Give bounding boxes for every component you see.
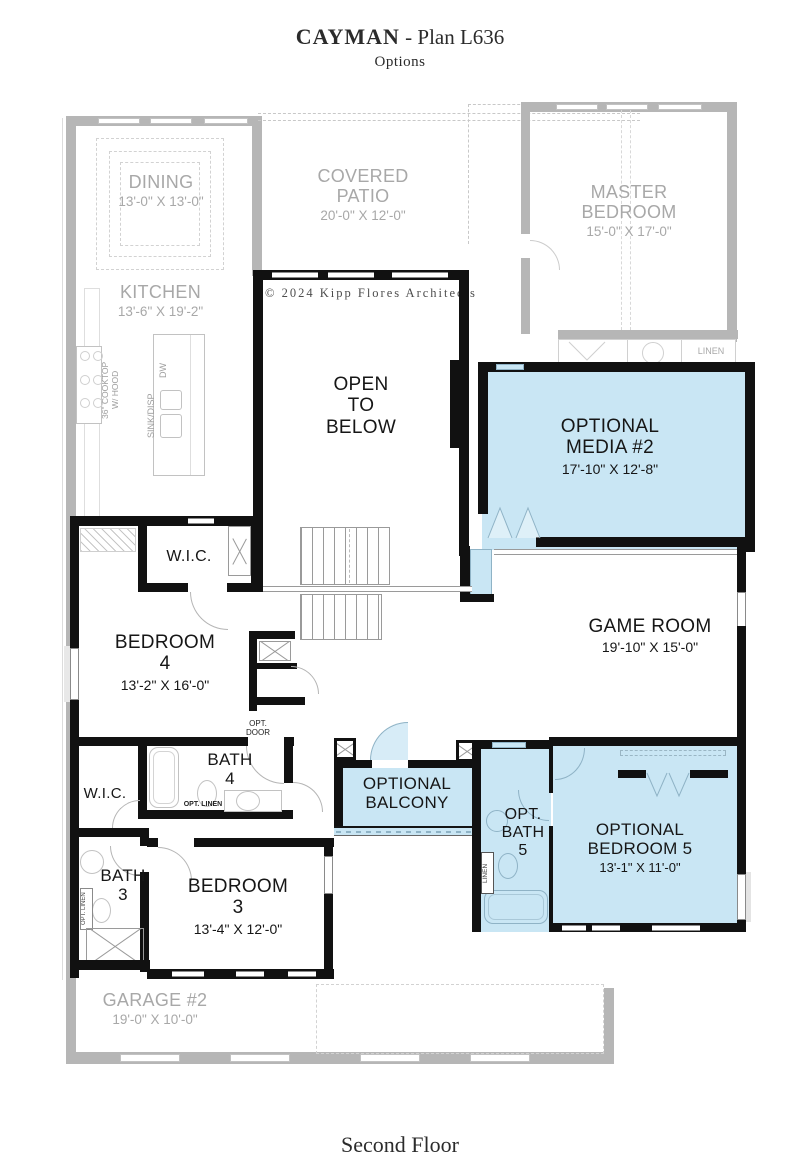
ceiling-header-line bbox=[494, 549, 738, 555]
double-door-icon bbox=[646, 772, 690, 798]
window bbox=[556, 104, 598, 110]
window bbox=[328, 272, 374, 278]
chase-x bbox=[334, 738, 356, 760]
door-opening bbox=[158, 838, 194, 847]
floor-plan-page: CAYMAN - Plan L636 Options DINING 13'-0"… bbox=[0, 0, 800, 1172]
chase-x bbox=[259, 641, 291, 661]
room-label-game-room: GAME ROOM 19'-10" X 15'-0" bbox=[574, 616, 726, 660]
balcony-railing bbox=[334, 826, 478, 836]
window bbox=[737, 874, 746, 920]
divider bbox=[627, 340, 628, 364]
window bbox=[470, 1054, 530, 1062]
room-name: BEDROOM 3 bbox=[188, 876, 288, 919]
wall-segment bbox=[472, 740, 481, 932]
island-counter-line bbox=[190, 335, 191, 475]
window bbox=[392, 272, 448, 278]
room-label-optional-bedroom-5: OPTIONAL BEDROOM 5 13'-1" X 11'-0" bbox=[566, 820, 714, 876]
room-dims: 17'-10" X 12'-8" bbox=[562, 461, 658, 477]
window bbox=[188, 518, 214, 524]
cased-opening bbox=[496, 364, 524, 370]
wall-segment bbox=[521, 258, 530, 334]
wall-segment bbox=[70, 737, 248, 746]
room-label-bath-4: BATH 4 bbox=[176, 750, 284, 792]
window bbox=[172, 971, 204, 977]
room-name: GARAGE #2 bbox=[103, 990, 208, 1010]
room-label-garage-2: GARAGE #2 19'-0" X 10'-0" bbox=[85, 990, 225, 1032]
wall-segment bbox=[70, 516, 138, 526]
garage-overhead-line bbox=[316, 984, 604, 1054]
stairs-upper-run bbox=[300, 527, 390, 585]
opt-linen-label-vertical: OPT. LINEN bbox=[81, 889, 92, 929]
linen-label: LINEN bbox=[688, 346, 734, 356]
opt-door-label: OPT. DOOR bbox=[237, 719, 279, 737]
island-sink bbox=[160, 390, 182, 410]
room-label-open-to-below: OPEN TO BELOW bbox=[302, 374, 420, 440]
stairs-direction-line bbox=[349, 529, 350, 583]
room-name: BATH 4 bbox=[207, 750, 252, 788]
window bbox=[204, 118, 248, 124]
wall-segment bbox=[459, 270, 469, 556]
stairs-lower-run bbox=[300, 594, 382, 640]
wall-segment bbox=[138, 583, 188, 592]
patio-roof-line bbox=[468, 104, 469, 244]
window bbox=[230, 1054, 290, 1062]
wall-segment bbox=[450, 360, 459, 448]
stair-railing bbox=[263, 586, 472, 592]
window bbox=[562, 925, 586, 931]
window bbox=[236, 971, 264, 977]
island-sink bbox=[160, 414, 182, 438]
room-name: BATH 3 bbox=[100, 866, 145, 904]
room-name: OPTIONAL BEDROOM 5 bbox=[588, 820, 693, 858]
toilet bbox=[642, 342, 664, 364]
room-name: W.I.C. bbox=[84, 786, 127, 803]
plan-subtitle: Options bbox=[0, 54, 800, 71]
room-name: COVERED PATIO bbox=[317, 166, 408, 206]
wall-segment bbox=[737, 546, 746, 740]
window bbox=[70, 648, 79, 700]
room-dims: 13'-0" X 13'-0" bbox=[118, 194, 203, 209]
room-name: MASTER BEDROOM bbox=[581, 182, 676, 222]
room-label-opt-bath-5: OPT. BATH 5 bbox=[488, 806, 558, 868]
wall-segment bbox=[521, 102, 530, 234]
sink-disp-label: SINK/DISP bbox=[146, 384, 158, 448]
cased-opening bbox=[492, 742, 526, 748]
wall-segment bbox=[70, 828, 147, 837]
wall-segment bbox=[536, 537, 755, 547]
bathtub-inner bbox=[488, 894, 544, 920]
wall-segment bbox=[478, 362, 488, 514]
room-dims: 13'-1" X 11'-0" bbox=[599, 860, 680, 875]
door-swing bbox=[530, 240, 560, 270]
door-swing bbox=[291, 666, 319, 694]
bathtub bbox=[484, 890, 548, 924]
cooktop-burners bbox=[77, 348, 101, 422]
room-label-optional-balcony: OPTIONAL BALCONY bbox=[340, 774, 474, 820]
window bbox=[324, 856, 333, 894]
window bbox=[98, 118, 140, 124]
window bbox=[658, 104, 702, 110]
cooktop-label: 36" COOKTOP W/ HOOD bbox=[100, 340, 120, 440]
window bbox=[288, 971, 316, 977]
wall-segment bbox=[460, 594, 494, 602]
room-name: BEDROOM 4 bbox=[115, 632, 215, 675]
chase-x bbox=[228, 526, 251, 576]
window-sill bbox=[746, 872, 751, 922]
room-dims: 19'-0" X 10'-0" bbox=[112, 1012, 197, 1027]
window bbox=[120, 1054, 180, 1062]
plan-number: - Plan L636 bbox=[400, 25, 504, 49]
wall-segment bbox=[604, 988, 614, 1058]
wall-segment bbox=[251, 516, 260, 592]
bathtub bbox=[149, 747, 179, 808]
wall-segment bbox=[558, 330, 738, 339]
toilet bbox=[236, 791, 260, 811]
door-swing bbox=[293, 782, 323, 812]
room-label-wic-upper: W.I.C. bbox=[148, 548, 230, 570]
wall-segment bbox=[70, 960, 150, 970]
window bbox=[150, 118, 192, 124]
room-dims: 15'-0" X 17'-0" bbox=[586, 224, 671, 239]
room-name: KITCHEN bbox=[120, 282, 201, 302]
window bbox=[360, 1054, 420, 1062]
room-name: OPTIONAL BALCONY bbox=[363, 774, 451, 812]
closet-shelf-line bbox=[620, 750, 726, 756]
room-name: OPTIONAL MEDIA #2 bbox=[561, 416, 659, 459]
room-label-master-bedroom: MASTER BEDROOM 15'-0" X 17'-0" bbox=[556, 182, 702, 244]
room-label-bedroom-4: BEDROOM 4 13'-2" X 16'-0" bbox=[92, 632, 238, 694]
room-name: OPT. BATH 5 bbox=[502, 806, 545, 860]
wall-segment bbox=[70, 516, 79, 978]
patio-roof-line bbox=[258, 120, 640, 121]
shower bbox=[86, 928, 144, 964]
room-label-kitchen: KITCHEN 13'-6" X 19'-2" bbox=[88, 282, 233, 322]
window-mullion bbox=[737, 626, 746, 638]
room-label-optional-media: OPTIONAL MEDIA #2 17'-10" X 12'-8" bbox=[534, 416, 686, 476]
plan-name: CAYMAN bbox=[296, 24, 400, 49]
bathtub-inner bbox=[153, 751, 175, 804]
room-label-dining: DINING 13'-0" X 13'-0" bbox=[90, 172, 232, 216]
wall-segment bbox=[727, 102, 737, 342]
wall-segment bbox=[284, 737, 293, 783]
room-name: GAME ROOM bbox=[588, 616, 711, 637]
room-name: W.I.C. bbox=[166, 548, 211, 566]
room-dims: 20'-0" X 12'-0" bbox=[320, 208, 405, 223]
shower-door-icon bbox=[568, 341, 606, 362]
door-pocket bbox=[470, 549, 492, 595]
wall-segment bbox=[549, 737, 746, 746]
divider bbox=[681, 340, 682, 364]
room-name: OPEN TO BELOW bbox=[326, 374, 396, 438]
wall-segment bbox=[227, 583, 260, 592]
room-label-covered-patio: COVERED PATIO 20'-0" X 12'-0" bbox=[288, 166, 438, 228]
dishwasher-label: DW bbox=[158, 360, 170, 382]
room-dims: 19'-10" X 15'-0" bbox=[602, 639, 698, 655]
room-label-bedroom-3: BEDROOM 3 13'-4" X 12'-0" bbox=[164, 876, 312, 934]
room-dims: 13'-6" X 19'-2" bbox=[118, 304, 203, 319]
wall-segment bbox=[745, 362, 755, 552]
exterior-siding-line bbox=[62, 118, 63, 980]
patio-roof-line bbox=[258, 113, 640, 114]
opt-linen-label: OPT. LINEN bbox=[176, 801, 230, 808]
door-swing bbox=[190, 592, 228, 630]
floor-caption: Second Floor bbox=[0, 1132, 800, 1158]
wall-segment bbox=[138, 516, 147, 592]
wall-segment bbox=[249, 631, 295, 639]
window bbox=[272, 272, 318, 278]
double-door-icon bbox=[486, 506, 542, 540]
room-dims: 13'-2" X 16'-0" bbox=[121, 677, 209, 693]
wall-segment bbox=[334, 760, 372, 768]
plan-title: CAYMAN - Plan L636 Options bbox=[0, 24, 800, 71]
attic-hatch bbox=[80, 528, 136, 552]
sink bbox=[80, 850, 104, 874]
door-swing bbox=[370, 722, 408, 760]
window bbox=[592, 925, 620, 931]
wall-segment bbox=[252, 116, 262, 276]
room-name: DINING bbox=[129, 172, 194, 192]
toilet bbox=[92, 898, 111, 923]
wall-segment bbox=[249, 697, 305, 705]
plan-title-line: CAYMAN - Plan L636 bbox=[0, 24, 800, 50]
copyright-text: © 2024 Kipp Flores Architects bbox=[265, 286, 477, 301]
window bbox=[606, 104, 648, 110]
room-dims: 13'-4" X 12'-0" bbox=[194, 921, 282, 937]
window bbox=[652, 925, 700, 931]
wall-segment bbox=[66, 980, 76, 1058]
